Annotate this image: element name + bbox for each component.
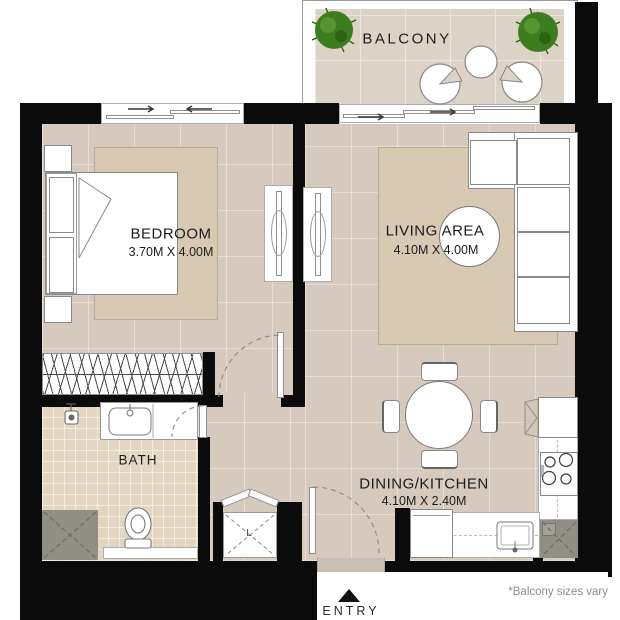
sofa-cushion (470, 140, 517, 185)
linen-closet-label: L (246, 527, 252, 539)
mirror-panel (264, 185, 293, 282)
interior-wall (213, 502, 223, 565)
bath-cabinet (103, 547, 198, 559)
pillow (49, 177, 74, 233)
sofa-cushion (517, 187, 570, 232)
utility-box (542, 523, 556, 536)
sofa-cushion (517, 232, 570, 277)
mirror-panel (303, 187, 332, 282)
bath-door (199, 405, 207, 438)
window-sash (106, 115, 174, 119)
sliding-door-panel (473, 106, 535, 110)
living-area-label: LIVING AREA (386, 223, 485, 240)
vanity (100, 402, 198, 440)
bedroom-dimensions: 3.70M X 4.00M (129, 245, 214, 259)
dining-chair (382, 400, 400, 433)
living-area-dimensions: 4.10M X 4.00M (394, 243, 479, 257)
floor-plan: BALCONY BEDROOM 3.70M X 4.00M LIVING ARE… (0, 0, 620, 620)
interior-wall (203, 352, 215, 407)
nightstand (44, 296, 72, 323)
sliding-door-panel (343, 114, 405, 118)
exterior-wall (244, 103, 339, 124)
sofa-cushion (517, 277, 570, 324)
dining-kitchen-label: DINING/KITCHEN (359, 476, 489, 493)
dining-chair (421, 450, 458, 469)
exterior-wall (575, 124, 612, 575)
interior-wall (198, 437, 210, 565)
entry-door (309, 487, 316, 554)
mirror-panel-handle (271, 210, 287, 256)
fridge (538, 397, 578, 438)
entry-arrow-icon (338, 589, 360, 602)
dining-chair (480, 400, 498, 433)
dining-kitchen-dimensions: 4.10M X 2.40M (382, 494, 467, 508)
balcony-floor (315, 9, 564, 106)
exterior-wall (20, 561, 317, 620)
exterior-wall (575, 2, 598, 124)
sofa-cushion (517, 138, 570, 185)
nightstand (44, 145, 72, 172)
interior-wall (281, 395, 305, 407)
bedroom-door (277, 332, 284, 398)
entry-label: ENTRY (322, 604, 379, 618)
exterior-wall (20, 103, 42, 575)
mirror-panel-handle (310, 211, 326, 257)
balcony-footnote: *Balcony sizes vary (508, 586, 608, 598)
wardrobe-closet (42, 353, 203, 395)
balcony-label: BALCONY (362, 31, 451, 48)
stove (540, 452, 578, 496)
bedroom-label: BEDROOM (130, 226, 211, 243)
sliding-door-panel (403, 110, 475, 114)
pillow (49, 237, 74, 293)
shower (42, 510, 98, 560)
dishwasher-panel (413, 515, 450, 516)
window-sash (170, 110, 240, 114)
interior-wall (277, 502, 302, 565)
dining-chair (421, 362, 458, 381)
interior-wall (395, 508, 410, 561)
dishwasher (410, 509, 453, 558)
bath-label: BATH (118, 453, 157, 468)
dining-table (405, 381, 473, 449)
